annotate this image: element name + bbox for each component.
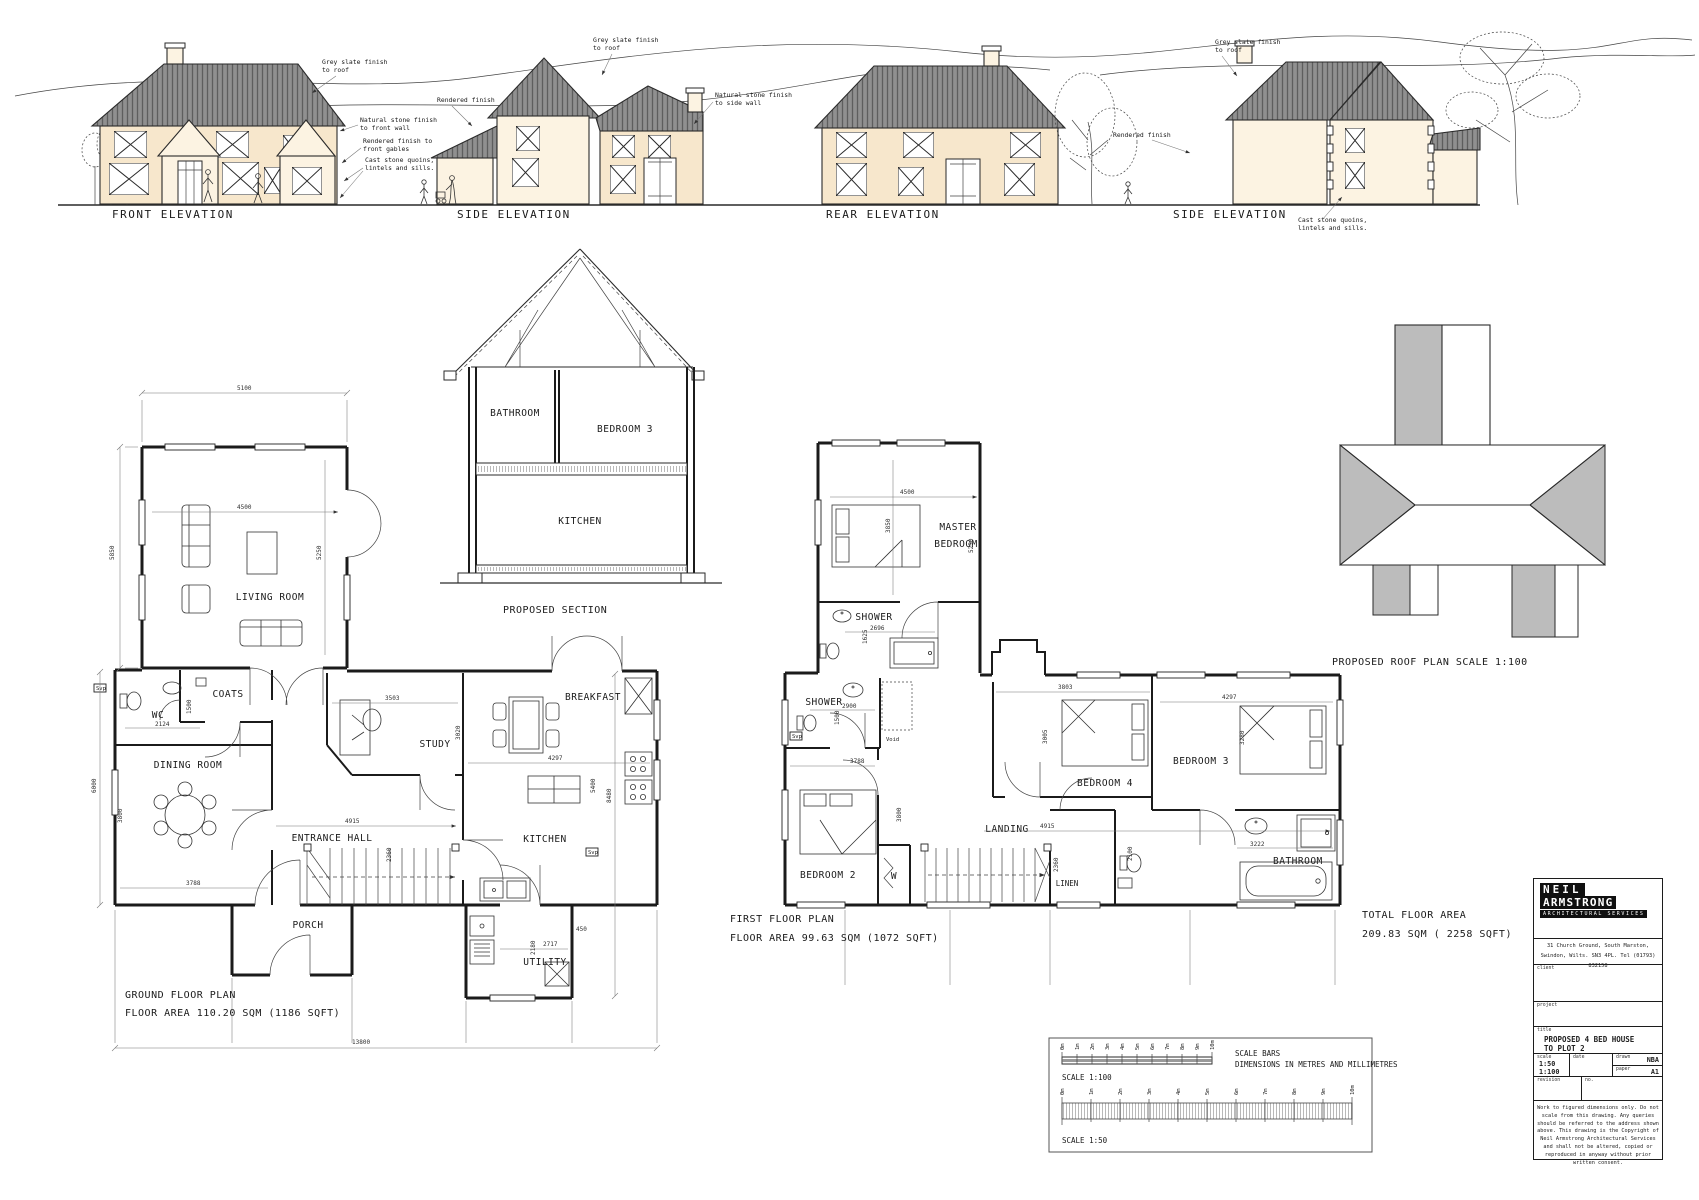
svg-text:lintels and sills.: lintels and sills. [365,164,434,172]
svg-text:3800: 3800 [117,808,124,823]
roof-plan-drawing: PROPOSED ROOF PLAN SCALE 1:100 [1332,325,1605,668]
svg-text:4297: 4297 [1222,694,1237,701]
first-floor-area-label: FLOOR AREA 99.63 SQM (1072 SQFT) [730,933,939,944]
svg-text:1500: 1500 [834,710,841,725]
annotation-text: Rendered finish [1113,131,1171,139]
person-figure [1124,182,1132,204]
first-floor-plan-drawing: Svp MASTER BEDROOM SHOWER SHOWER Void BE… [730,440,1343,985]
svg-text:5m: 5m [1205,1088,1211,1095]
svg-text:2m: 2m [1118,1088,1124,1095]
title-block-project: project [1534,1002,1662,1027]
scale-bars-title: SCALE BARS [1235,1049,1281,1058]
svg-text:6000: 6000 [91,778,98,793]
study-label: STUDY [419,739,450,750]
svg-text:8m: 8m [1180,1043,1186,1050]
svg-text:2360: 2360 [1053,857,1060,872]
title-block-scale-row: scale 1:50 1:100 date drawn NBA paper A1 [1534,1054,1662,1077]
svg-text:3280: 3280 [1239,730,1246,745]
master-bedroom-label: MASTER [939,522,976,533]
svg-text:2180: 2180 [530,940,537,955]
svg-text:3850: 3850 [885,518,892,533]
svg-text:10m: 10m [1350,1084,1356,1095]
annotation-text: Natural stone finish [360,116,437,124]
address-line1: 31 Church Ground, South Marston, [1547,943,1649,949]
total-floor-area-line1: TOTAL FLOOR AREA [1362,910,1466,921]
dining-table [154,782,216,848]
svg-text:2360: 2360 [386,847,393,862]
annotation-text: Grey slate finish [1215,38,1281,46]
living-room-label: LIVING ROOM [236,592,304,603]
roof-plan-title: PROPOSED ROOF PLAN SCALE 1:100 [1332,657,1528,668]
svg-text:4297: 4297 [548,755,563,762]
svg-text:6m: 6m [1150,1043,1156,1050]
svg-text:3503: 3503 [385,695,400,702]
svg-text:1500: 1500 [186,699,193,714]
svg-text:3005: 3005 [1042,729,1049,744]
svg-text:2m: 2m [1090,1043,1096,1050]
section-bathroom-label: BATHROOM [490,408,540,419]
drawing-canvas: FRONT ELEVATION SIDE ELEVATION REAR ELEV… [0,0,1699,1200]
svg-text:front gables: front gables [363,145,409,153]
breakfast-label: BREAKFAST [565,692,621,703]
paper-value: A1 [1651,1068,1659,1076]
coats-label: COATS [212,689,243,700]
living-room-furniture [182,505,302,646]
total-floor-area-line2: 209.83 SQM ( 2258 SQFT) [1362,929,1512,940]
ground-floor-dimensions: 5100 5850 4500 5250 6000 2124 1500 3800 … [91,385,660,1051]
svg-text:4915: 4915 [345,818,360,825]
title-block-client: client [1534,965,1662,1002]
wardrobe-label: W [891,871,897,882]
person-figure [420,180,428,204]
scale-bars: SCALE BARS DIMENSIONS IN METRES AND MILL… [1049,1038,1398,1152]
drawn-value: NBA [1647,1056,1659,1064]
svg-text:3222: 3222 [1250,841,1265,848]
svg-text:13800: 13800 [352,1039,370,1046]
svg-text:1m: 1m [1089,1088,1095,1095]
linen-label: LINEN [1056,879,1079,888]
svg-text:to front wall: to front wall [360,124,410,132]
shower2-label: SHOWER [805,697,842,708]
bed4 [1062,700,1148,766]
svg-text:to side wall: to side wall [715,99,761,107]
annotation-text: Rendered finish [437,96,495,104]
svg-text:4500: 4500 [900,489,915,496]
logo-neil: NEIL [1540,883,1585,896]
staircase [921,844,1051,902]
drawing-title-line1: PROPOSED 4 BED HOUSE [1544,1035,1634,1044]
wc-fixtures [120,678,206,710]
bedroom2-label: BEDROOM 2 [800,870,856,881]
staircase [304,844,459,905]
svp-label: Svp [792,734,802,740]
section-bedroom3-label: BEDROOM 3 [597,424,653,435]
svg-text:5850: 5850 [109,545,116,560]
svg-text:1625: 1625 [862,629,869,644]
utility-label: UTILITY [523,957,567,968]
rear-elevation-drawing [815,46,1137,204]
wc-label: WC [152,710,164,721]
svg-text:5100: 5100 [237,385,252,392]
svg-text:4915: 4915 [1040,823,1055,830]
svg-text:0m: 0m [1060,1088,1066,1095]
bed2 [800,790,876,854]
porch-label: PORCH [292,920,323,931]
proposed-section-title: PROPOSED SECTION [503,605,607,616]
landing-label: LANDING [985,824,1029,835]
front-elevation-label: FRONT ELEVATION [112,208,234,221]
breakfast-table [493,697,559,753]
svg-text:3788: 3788 [186,880,201,887]
svg-text:to roof: to roof [1215,46,1242,54]
side-elevation-left-label: SIDE ELEVATION [457,208,571,221]
svg-text:8480: 8480 [606,788,613,803]
svg-text:5400: 5400 [590,778,597,793]
front-door [178,161,202,204]
shower1-label: SHOWER [855,612,892,623]
annotation-text: Cast stone quoins, [365,156,434,164]
scale-100-label: SCALE 1:100 [1062,1073,1112,1082]
bed3 [1240,706,1326,774]
svg-text:7m: 7m [1263,1088,1269,1095]
master-bed [832,505,920,567]
bedroom4-label: BEDROOM 4 [1077,778,1133,789]
side-elevation-right-drawing [1226,32,1580,205]
title-block-note: Work to figured dimensions only. Do not … [1534,1101,1662,1157]
logo-architectural-services: ARCHITECTURAL SERVICES [1540,910,1647,918]
svg-text:4500: 4500 [237,504,252,511]
title-block-title: title PROPOSED 4 BED HOUSE TO PLOT 2 [1534,1027,1662,1054]
svg-text:0m: 0m [1060,1043,1066,1050]
title-block-address: 31 Church Ground, South Marston, Swindon… [1534,939,1662,965]
scale-bars-subtitle: DIMENSIONS IN METRES AND MILLIMETRES [1235,1060,1398,1069]
svg-text:9m: 9m [1195,1043,1201,1050]
svg-text:5250: 5250 [316,545,323,560]
scale-value-2: 1:100 [1539,1068,1559,1076]
svg-text:450: 450 [576,926,587,933]
annotation-text: Grey slate finish [593,36,659,44]
svg-text:2900: 2900 [842,703,857,710]
scale-value-1: 1:50 [1539,1060,1555,1068]
svg-text:3m: 3m [1105,1043,1111,1050]
svg-text:2696: 2696 [870,625,885,632]
annotation-text: Grey slate finish [322,58,388,66]
svg-text:to roof: to roof [322,66,349,74]
logo-armstrong: ARMSTRONG [1540,896,1616,909]
section-kitchen-label: KITCHEN [558,516,602,527]
svg-text:5m: 5m [1135,1043,1141,1050]
svg-text:7m: 7m [1165,1043,1171,1050]
svg-text:3m: 3m [1147,1088,1153,1095]
svg-text:6m: 6m [1234,1088,1240,1095]
annotation-text: Natural stone finish [715,91,792,99]
svg-text:to roof: to roof [593,44,620,52]
annotation-text: Cast stone quoins, [1298,216,1367,224]
svg-text:3803: 3803 [1058,684,1073,691]
study-desk [340,700,381,755]
svg-text:2124: 2124 [155,721,170,728]
svg-text:9m: 9m [1321,1088,1327,1095]
svg-text:5250: 5250 [968,538,975,553]
ground-floor-area-label: FLOOR AREA 110.20 SQM (1186 SQFT) [125,1008,340,1019]
rear-elevation-label: REAR ELEVATION [826,208,940,221]
proposed-section-drawing: BATHROOM BEDROOM 3 KITCHEN PROPOSED SECT… [440,249,722,616]
side-elevation-right-label: SIDE ELEVATION [1173,208,1287,221]
dining-room-label: DINING ROOM [154,760,222,771]
svp-label: Svp [588,850,598,856]
svg-text:4m: 4m [1120,1043,1126,1050]
void-label: Void [886,737,899,743]
bedroom3-label: BEDROOM 3 [1173,756,1229,767]
first-floor-plan-title: FIRST FLOOR PLAN [730,914,834,925]
title-block-logo: NEIL ARMSTRONG ARCHITECTURAL SERVICES [1534,879,1662,939]
svg-text:1m: 1m [1075,1043,1081,1050]
side-elevation-left-drawing [420,58,704,204]
annotation-text: Rendered finish to [363,137,432,145]
svg-text:3800: 3800 [896,807,903,822]
svg-text:3788: 3788 [850,758,865,765]
title-block-revision-row: revision no. [1534,1077,1662,1101]
svp-label: Svp [96,686,106,692]
svg-text:4m: 4m [1176,1088,1182,1095]
entrance-hall-label: ENTRANCE HALL [292,833,373,844]
ground-floor-plan-title: GROUND FLOOR PLAN [125,990,236,1001]
utility-fittings [470,916,569,986]
scale-50-label: SCALE 1:50 [1062,1136,1108,1145]
svg-text:lintels and sills.: lintels and sills. [1298,224,1367,232]
svg-text:8m: 8m [1292,1088,1298,1095]
svg-text:2100: 2100 [1127,846,1134,861]
bathroom-label: BATHROOM [1273,856,1323,867]
kitchen-label: KITCHEN [523,834,567,845]
drawing-title-line2: TO PLOT 2 [1544,1044,1585,1053]
title-block: NEIL ARMSTRONG ARCHITECTURAL SERVICES 31… [1533,878,1663,1160]
front-elevation-drawing [82,43,345,205]
svg-text:3020: 3020 [455,725,462,740]
architectural-drawing-sheet: FRONT ELEVATION SIDE ELEVATION REAR ELEV… [0,0,1699,1200]
ground-floor-plan-drawing: Svp Svp LIVING ROOM WC COATS DINING ROOM… [91,385,660,1051]
svg-text:2717: 2717 [543,941,558,948]
svg-text:10m: 10m [1210,1039,1216,1050]
